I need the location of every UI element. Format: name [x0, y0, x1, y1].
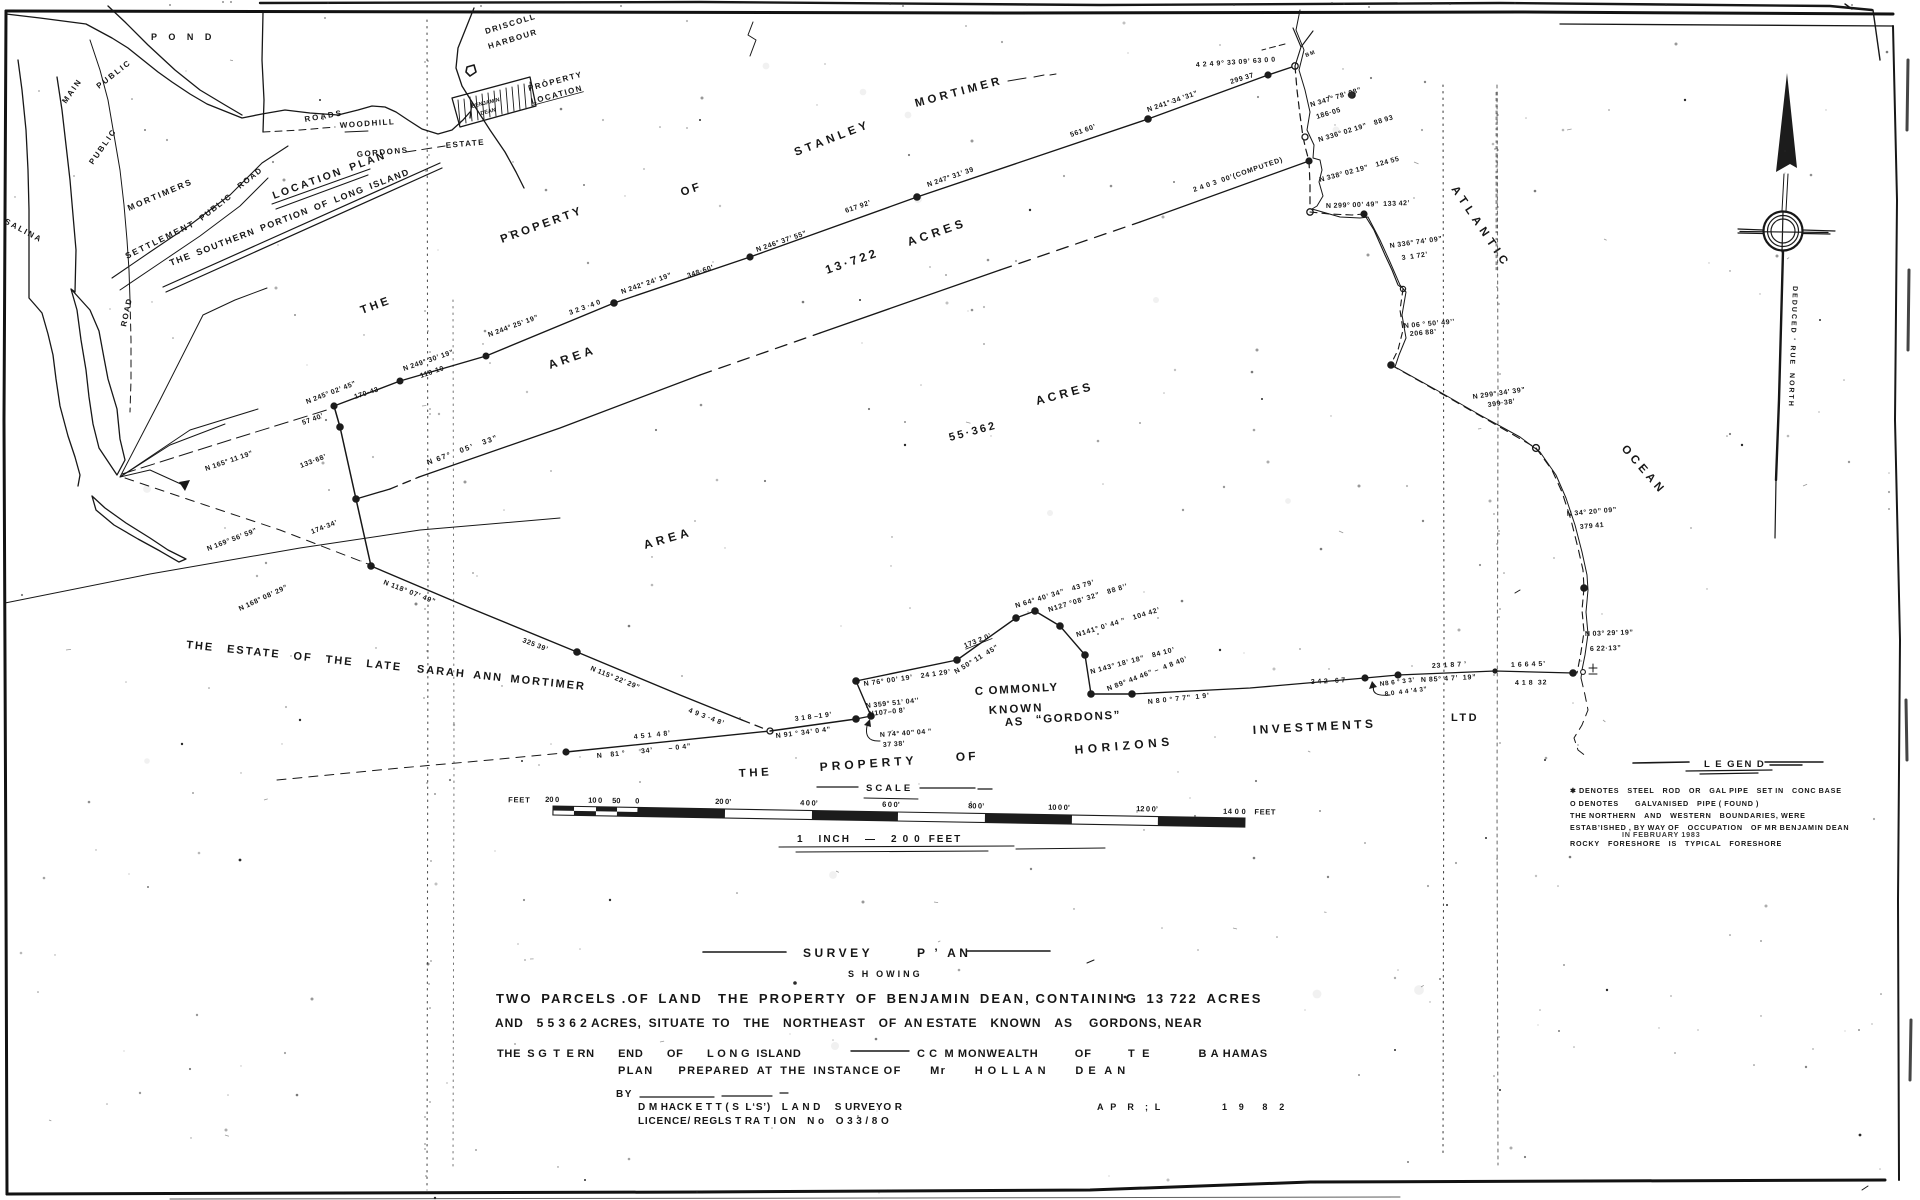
svg-text:OF: OF — [955, 749, 978, 764]
svg-text:LTD: LTD — [1451, 712, 1479, 724]
svg-text:P ’ AN: P ’ AN — [917, 946, 971, 960]
svg-text:THE: THE — [739, 766, 773, 780]
svg-text:10 0 0’: 10 0 0’ — [1048, 803, 1070, 812]
svg-text:4 1 8 32: 4 1 8 32 — [1515, 679, 1547, 687]
svg-text:10 0: 10 0 — [588, 796, 602, 805]
svg-text:SCALE: SCALE — [866, 783, 913, 794]
svg-text:SURVEY: SURVEY — [803, 946, 873, 960]
svg-text:50: 50 — [612, 796, 620, 805]
svg-text:IN FEBRUARY 1983: IN FEBRUARY 1983 — [1622, 830, 1701, 839]
svg-text:FEET: FEET — [508, 795, 531, 804]
svg-text:AS: AS — [1005, 716, 1025, 729]
svg-text:BY: BY — [616, 1089, 633, 1100]
svg-text:TWO PARCELS .OF LAND THE PROPE: TWO PARCELS .OF LAND THE PROPERTY OF BEN… — [496, 991, 1262, 1006]
svg-text:20 0: 20 0 — [545, 795, 559, 804]
svg-text:PLAN PREPARED AT THE INSTANCE: PLAN PREPARED AT THE INSTANCE OF Mr H O … — [618, 1065, 1127, 1077]
svg-text:1 9 8 2: 1 9 8 2 — [1222, 1102, 1289, 1112]
svg-text:1 INCH — 2 0 0 FEET: 1 INCH — 2 0 0 FEET — [797, 834, 962, 845]
svg-text:1 6 6 4 5’: 1 6 6 4 5’ — [1511, 661, 1546, 669]
svg-text:AND 5 5 3 6 2 ACRES, SITUATE T: AND 5 5 3 6 2 ACRES, SITUATE TO THE NORT… — [495, 1016, 1203, 1030]
svg-text:✱ DENOTES STEEL ROD OR GAL PIP: ✱ DENOTES STEEL ROD OR GAL PIPE SET IN C… — [1570, 786, 1842, 795]
svg-text:THE NORTHERN AND WESTERN BOUND: THE NORTHERN AND WESTERN BOUNDARIES, WER… — [1570, 811, 1806, 820]
svg-text:ESTAB’ISHED , BY WAY OF OCCUPA: ESTAB’ISHED , BY WAY OF OCCUPATION OF MR… — [1570, 823, 1849, 832]
svg-text:L E GEN D: L E GEN D — [1704, 759, 1766, 770]
svg-text:4 0 0’: 4 0 0’ — [800, 798, 818, 807]
svg-text:A P R ; L: A P R ; L — [1097, 1102, 1163, 1112]
svg-text:C C M MONWEALTH OF T E: C C M MONWEALTH OF T E B A HAMAS — [917, 1048, 1268, 1060]
svg-text:THE S G T E RN END OF L O: THE S G T E RN END OF L O N G ISLAND — [497, 1048, 802, 1060]
svg-text:LICENCE/ REGLS T RA T I ON N o: LICENCE/ REGLS T RA T I ON N o O 3 3 / 8… — [638, 1116, 890, 1127]
svg-text:D M HACK E T T ( S L‘S’) L A: D M HACK E T T ( S L‘S’) L A N D S URVEY… — [638, 1102, 903, 1113]
svg-text:6 22·13”: 6 22·13” — [1590, 645, 1622, 653]
svg-text:14 0 0 FEET: 14 0 0 FEET — [1223, 807, 1276, 817]
svg-text:12 0 0’: 12 0 0’ — [1136, 804, 1158, 813]
svg-text:P O N D: P O N D — [151, 32, 216, 42]
svg-text:ROCKY FORESHORE IS TYPICAL FOR: ROCKY FORESHORE IS TYPICAL FORESHORE — [1570, 839, 1782, 848]
svg-text:20 0’: 20 0’ — [715, 797, 731, 806]
svg-text:0: 0 — [635, 796, 639, 805]
svg-text:O DENOTES GALVANISED PIPE ( F: O DENOTES GALVANISED PIPE ( FOUND ) — [1570, 799, 1759, 808]
svg-text:S H OWING: S H OWING — [848, 969, 923, 979]
svg-text:6 0 0’: 6 0 0’ — [882, 800, 900, 809]
